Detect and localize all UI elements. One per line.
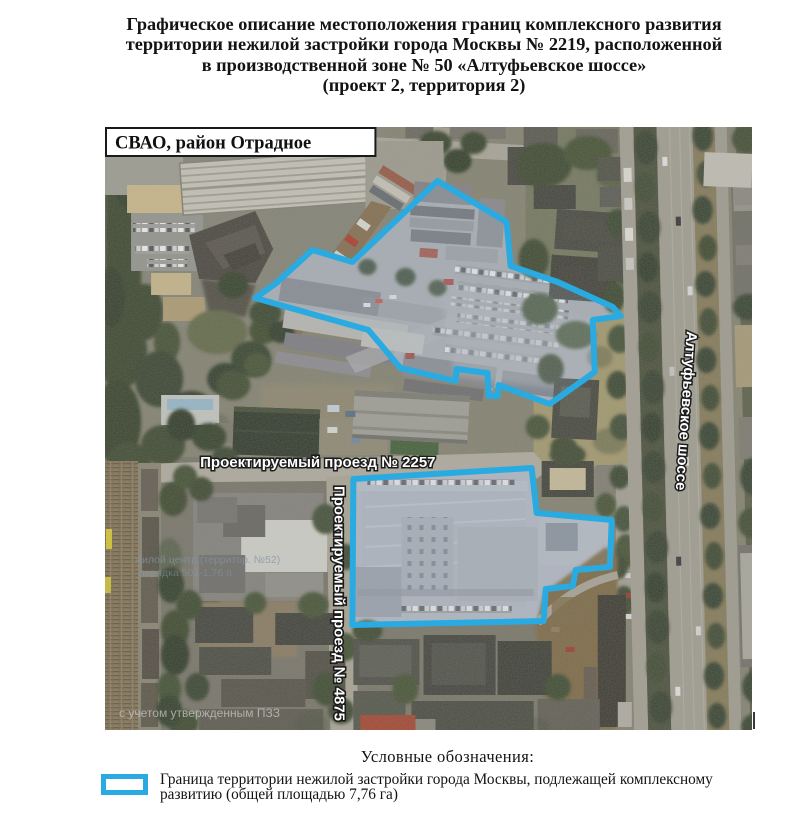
svg-text:Проектируемый проезд № 2257: Проектируемый проезд № 2257 <box>200 454 435 471</box>
svg-text:СВАО, район Отрадное: СВАО, район Отрадное <box>115 134 311 154</box>
svg-text:Проектируемый проезд № 4875: Проектируемый проезд № 4875 <box>330 486 347 721</box>
